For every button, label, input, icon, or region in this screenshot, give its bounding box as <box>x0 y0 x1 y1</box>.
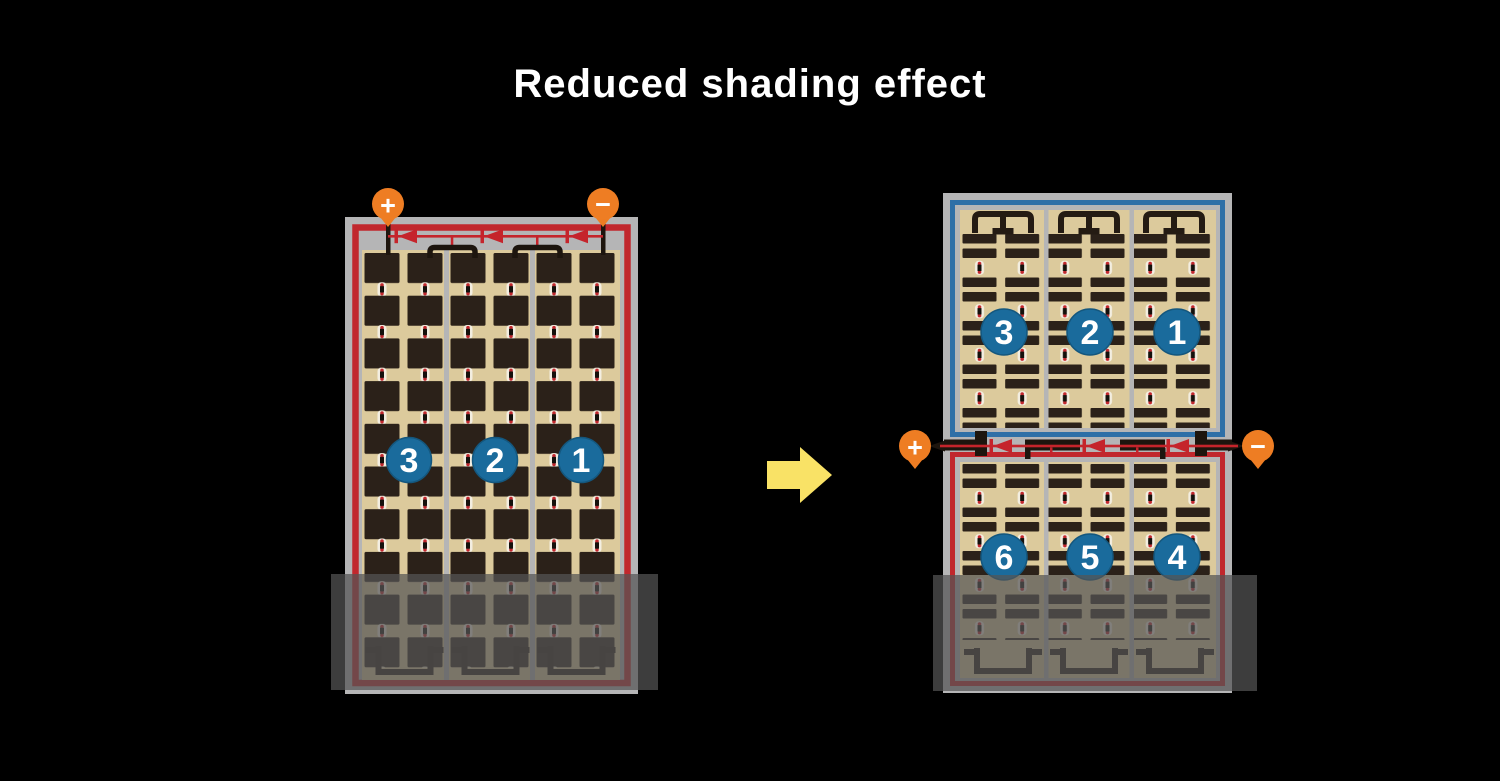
shading-overlay <box>331 574 658 690</box>
full-cell-module: 3 2 1 + − <box>331 188 658 694</box>
cell-string-badge: 5 <box>1067 534 1113 580</box>
cell-string-badge: 3 <box>981 309 1027 355</box>
string-number: 3 <box>995 314 1014 352</box>
bus-riser <box>975 431 987 456</box>
plus-symbol: + <box>380 191 396 221</box>
diagram-canvas: Reduced shading effect <box>0 0 1500 781</box>
page-title: Reduced shading effect <box>0 62 1500 107</box>
cell-string-badge: 1 <box>559 438 604 483</box>
string-number: 2 <box>486 442 505 480</box>
column-separator <box>1044 210 1049 428</box>
minus-symbol: − <box>595 190 611 220</box>
cell-string-badge: 1 <box>1154 309 1200 355</box>
cell-string-badge: 3 <box>387 438 432 483</box>
plus-terminal: + <box>899 430 931 469</box>
diode-tap <box>1136 448 1139 457</box>
arrow-right-icon <box>767 447 832 503</box>
bus-stub <box>1025 448 1031 459</box>
string-number: 1 <box>572 442 591 480</box>
string-number: 3 <box>400 442 419 480</box>
shading-overlay <box>933 575 1257 691</box>
minus-terminal: − <box>1242 430 1274 469</box>
column-separator <box>1130 210 1135 428</box>
cell-string-badge: 2 <box>1067 309 1113 355</box>
diode-tap <box>1050 448 1053 457</box>
plus-symbol: + <box>907 433 923 463</box>
string-number: 2 <box>1081 314 1100 352</box>
string-number: 1 <box>1168 314 1187 352</box>
cell-string-badge: 2 <box>473 438 518 483</box>
string-number: 5 <box>1081 539 1100 577</box>
cell-string-badge: 4 <box>1154 534 1200 580</box>
string-number: 6 <box>995 539 1014 577</box>
string-number: 4 <box>1168 539 1187 577</box>
half-cut-module-top: 3 2 1 <box>943 193 1232 445</box>
shading-effect-diagram: 3 2 1 + − <box>0 0 1500 781</box>
bus-stub <box>1160 448 1166 459</box>
minus-symbol: − <box>1250 432 1266 462</box>
bus-riser <box>1195 431 1207 456</box>
cell-string-badge: 6 <box>981 534 1027 580</box>
